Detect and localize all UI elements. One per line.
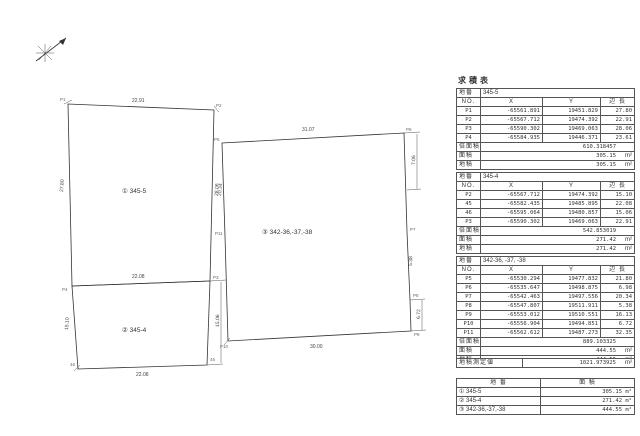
col-header: X <box>481 266 543 275</box>
summary-parcel: ① 345-5 <box>457 388 541 397</box>
dimension-label: 20.34 <box>217 183 224 196</box>
double-area-row: 倍面積 542.853019 <box>457 227 635 236</box>
footer-value: 542.853019 <box>481 227 635 236</box>
y-coord-cell: 19487.273 <box>543 329 601 338</box>
total-area-table: 地積測定値 1021.973925m² <box>456 358 635 368</box>
point-label: P2 <box>216 103 222 108</box>
summary-row: ① 345-5 305.15 m² <box>457 388 635 397</box>
y-coord-cell: 19469.063 <box>543 125 601 134</box>
summary-header-row: 地 番 面 積 <box>457 379 635 388</box>
parcel-no-label: 地番 <box>457 257 481 266</box>
x-coord-cell: -65567.712 <box>481 191 543 200</box>
point-no-cell: P3 <box>457 218 481 227</box>
footer-label: 面積 <box>457 236 481 245</box>
footer-label: 地積 <box>457 161 481 170</box>
y-coord-cell: 19451.829 <box>543 107 601 116</box>
point-label: P4 <box>62 287 68 292</box>
survey-sheet: ① 345-5 ② 345-4 ③ 342-36,-37,-38 22.91 2… <box>0 0 640 436</box>
x-coord-cell: -65556.904 <box>481 320 543 329</box>
edge-length-cell: 28.06 <box>601 125 635 134</box>
edge-length-cell: 6.72 <box>601 320 635 329</box>
x-coord-cell: -65530.294 <box>481 275 543 284</box>
point-label: P11 <box>215 231 223 236</box>
x-coord-cell: -65590.302 <box>481 218 543 227</box>
point-row: P9-65553.01219510.55116.13 <box>457 311 635 320</box>
dimension-label: 7.06 <box>411 155 417 165</box>
point-no-cell: P1 <box>457 107 481 116</box>
x-coord-cell: -65547.807 <box>481 302 543 311</box>
double-area-row: 倍面積 610.318457 <box>457 143 635 152</box>
edge-length-cell: 32.35 <box>601 329 635 338</box>
point-row: P6-65535.64719498.8756.98 <box>457 284 635 293</box>
dimension-label: 15.06 <box>215 314 221 327</box>
dimension-label: 22.08 <box>132 274 145 280</box>
summary-area: 271.42 m² <box>541 397 635 406</box>
dimension-label: 15.10 <box>64 317 71 330</box>
col-header: Y <box>543 182 601 191</box>
parcel-3-outline <box>222 133 411 341</box>
x-coord-cell: -65590.302 <box>481 125 543 134</box>
point-label: P1 <box>60 97 66 102</box>
point-row: 45-65582.43519485.89522.08 <box>457 200 635 209</box>
col-header: NO. <box>457 182 481 191</box>
y-coord-cell: 19474.392 <box>543 191 601 200</box>
footer-label: 倍面積 <box>457 227 481 236</box>
parcel-3-label: ③ 342-36,-37,-38 <box>262 228 313 236</box>
point-row: P7-65542.46319497.55620.34 <box>457 293 635 302</box>
parcel-1-label: ① 345-5 <box>122 187 147 195</box>
y-coord-cell: 19477.832 <box>543 275 601 284</box>
point-no-cell: 45 <box>457 200 481 209</box>
footer-label: 地積 <box>457 245 481 254</box>
edge-length-cell: 22.08 <box>601 200 635 209</box>
x-coord-cell: -65584.935 <box>481 134 543 143</box>
footer-value: 271.42m² <box>481 245 635 254</box>
col-header: NO. <box>457 266 481 275</box>
x-coord-cell: -65582.435 <box>481 200 543 209</box>
registered-area-row: 地積 305.15m² <box>457 161 635 170</box>
point-label: 46 <box>70 362 76 367</box>
footer-value: 889.103325 <box>481 338 635 347</box>
col-header: X <box>481 182 543 191</box>
col-header: 辺 長 <box>601 266 635 275</box>
parcel-no-row: 地番 345-4 <box>457 173 635 182</box>
area-table-parcel-1: 地番 345-5 NO. X Y 辺 長 P1-65561.89119451.8… <box>456 88 635 170</box>
dimension-label: 6.72 <box>416 309 422 319</box>
north-arrow-icon <box>36 38 66 62</box>
dimension-label: 5.38 <box>408 256 414 266</box>
summary-parcel: ③ 342-36,-37,-38 <box>457 406 541 415</box>
summary-area: 444.55 m² <box>541 406 635 415</box>
y-coord-cell: 19498.875 <box>543 284 601 293</box>
y-coord-cell: 19469.063 <box>543 218 601 227</box>
summary-parcel: ② 345-4 <box>457 397 541 406</box>
edge-length-cell: 27.80 <box>601 107 635 116</box>
total-area-label: 地積測定値 <box>457 359 523 368</box>
summary-row: ③ 342-36,-37,-38 444.55 m² <box>457 406 635 415</box>
dimension-label: 22.08 <box>136 372 149 378</box>
footer-value: 610.318457 <box>481 143 635 152</box>
point-no-cell: P5 <box>457 275 481 284</box>
x-coord-cell: -65561.891 <box>481 107 543 116</box>
point-row: P1-65561.89119451.82927.80 <box>457 107 635 116</box>
col-header: 面 積 <box>541 379 635 388</box>
y-coord-cell: 19485.895 <box>543 200 601 209</box>
point-no-cell: P3 <box>457 125 481 134</box>
col-header: 辺 長 <box>601 98 635 107</box>
y-coord-cell: 19480.857 <box>543 209 601 218</box>
footer-label: 面積 <box>457 347 481 356</box>
point-row: P11-65562.61219487.27332.35 <box>457 329 635 338</box>
x-coord-cell: -65567.712 <box>481 116 543 125</box>
point-no-cell: P4 <box>457 134 481 143</box>
area-table-parcel-3: 地番 342-36, -37, -38 NO. X Y 辺 長 P5-65530… <box>456 256 635 365</box>
point-no-cell: P6 <box>457 284 481 293</box>
dimension-label: 27.80 <box>59 179 66 192</box>
point-row: P3-65590.30219469.06322.91 <box>457 218 635 227</box>
point-label: 45 <box>210 357 216 362</box>
point-label: P5 <box>214 137 220 142</box>
edge-length-cell: 15.06 <box>601 209 635 218</box>
edge-length-cell: 21.80 <box>601 275 635 284</box>
y-coord-cell: 19446.371 <box>543 134 601 143</box>
point-no-cell: P7 <box>457 293 481 302</box>
parcel-1-outline <box>68 104 214 286</box>
summary-table: 地 番 面 積 ① 345-5 305.15 m² ② 345-4 271.42… <box>456 378 635 415</box>
area-row: 面積 444.55m² <box>457 347 635 356</box>
point-row: P10-65556.90419494.8516.72 <box>457 320 635 329</box>
parcel-no-value: 345-5 <box>481 89 635 98</box>
col-header: Y <box>543 266 601 275</box>
footer-value: 305.15m² <box>481 152 635 161</box>
footer-value: 305.15m² <box>481 161 635 170</box>
y-coord-cell: 19494.851 <box>543 320 601 329</box>
parcel-2-label: ② 345-4 <box>122 326 147 334</box>
total-area-value: 1021.973925m² <box>523 359 635 368</box>
point-no-cell: P2 <box>457 191 481 200</box>
footer-label: 面積 <box>457 152 481 161</box>
point-row: P3-65590.30219469.06328.06 <box>457 125 635 134</box>
col-header: NO. <box>457 98 481 107</box>
dimension-label: 22.91 <box>132 98 145 104</box>
computation-panel: 求積表 地番 345-5 NO. X Y 辺 長 P1-65561.891194… <box>456 70 636 89</box>
point-row: P8-65547.80719511.9115.38 <box>457 302 635 311</box>
footer-label: 倍面積 <box>457 143 481 152</box>
area-table-parcel-2: 地番 345-4 NO. X Y 辺 長 P2-65567.71219474.3… <box>456 172 635 254</box>
y-coord-cell: 19511.911 <box>543 302 601 311</box>
x-coord-cell: -65562.612 <box>481 329 543 338</box>
y-coord-cell: 19474.392 <box>543 116 601 125</box>
point-label: P6 <box>406 127 412 132</box>
header-row: NO. X Y 辺 長 <box>457 182 635 191</box>
point-label: P9 <box>414 332 420 337</box>
edge-length-cell: 15.10 <box>601 191 635 200</box>
registered-area-row: 地積 271.42m² <box>457 245 635 254</box>
point-no-cell: P2 <box>457 116 481 125</box>
edge-length-cell: 16.13 <box>601 311 635 320</box>
footer-value: 271.42m² <box>481 236 635 245</box>
x-coord-cell: -65553.012 <box>481 311 543 320</box>
point-row: P4-65584.93519446.37123.61 <box>457 134 635 143</box>
page-title: 求積表 <box>456 75 505 89</box>
x-coord-cell: -65595.064 <box>481 209 543 218</box>
col-header: 地 番 <box>457 379 541 388</box>
point-label: P8 <box>413 293 419 298</box>
parcel-no-label: 地番 <box>457 89 481 98</box>
parcel-no-row: 地番 342-36, -37, -38 <box>457 257 635 266</box>
footer-label: 倍面積 <box>457 338 481 347</box>
double-area-row: 倍面積 889.103325 <box>457 338 635 347</box>
summary-area: 305.15 m² <box>541 388 635 397</box>
extension-lines <box>64 100 426 371</box>
header-row: NO. X Y 辺 長 <box>457 266 635 275</box>
point-label: P10 <box>220 344 229 349</box>
point-no-cell: P10 <box>457 320 481 329</box>
parcel-2-outline <box>72 281 210 369</box>
edge-length-cell: 5.38 <box>601 302 635 311</box>
total-area-row: 地積測定値 1021.973925m² <box>457 359 635 368</box>
survey-drawing: ① 345-5 ② 345-4 ③ 342-36,-37,-38 22.91 2… <box>0 0 450 436</box>
edge-length-cell: 20.34 <box>601 293 635 302</box>
x-coord-cell: -65542.463 <box>481 293 543 302</box>
area-row: 面積 305.15m² <box>457 152 635 161</box>
edge-length-cell: 6.98 <box>601 284 635 293</box>
header-row: NO. X Y 辺 長 <box>457 98 635 107</box>
dimension-label: 30.00 <box>310 344 323 350</box>
dimension-label: 31.07 <box>302 127 315 133</box>
point-row: P2-65567.71219474.39222.91 <box>457 116 635 125</box>
y-coord-cell: 19497.556 <box>543 293 601 302</box>
point-label: P7 <box>410 227 416 232</box>
parcel-no-label: 地番 <box>457 173 481 182</box>
edge-length-cell: 22.91 <box>601 116 635 125</box>
point-no-cell: P8 <box>457 302 481 311</box>
edge-length-cell: 22.91 <box>601 218 635 227</box>
point-no-cell: P11 <box>457 329 481 338</box>
point-row: P2-65567.71219474.39215.10 <box>457 191 635 200</box>
point-label: P3 <box>213 275 219 280</box>
area-row: 面積 271.42m² <box>457 236 635 245</box>
point-row: P5-65530.29419477.83221.80 <box>457 275 635 284</box>
point-row: 46-65595.06419480.85715.06 <box>457 209 635 218</box>
col-header: Y <box>543 98 601 107</box>
point-no-cell: P9 <box>457 311 481 320</box>
parcel-no-value: 342-36, -37, -38 <box>481 257 635 266</box>
edge-length-cell: 23.61 <box>601 134 635 143</box>
col-header: X <box>481 98 543 107</box>
col-header: 辺 長 <box>601 182 635 191</box>
parcel-no-value: 345-4 <box>481 173 635 182</box>
footer-value: 444.55m² <box>481 347 635 356</box>
summary-row: ② 345-4 271.42 m² <box>457 397 635 406</box>
parcel-no-row: 地番 345-5 <box>457 89 635 98</box>
y-coord-cell: 19510.551 <box>543 311 601 320</box>
x-coord-cell: -65535.647 <box>481 284 543 293</box>
point-no-cell: 46 <box>457 209 481 218</box>
